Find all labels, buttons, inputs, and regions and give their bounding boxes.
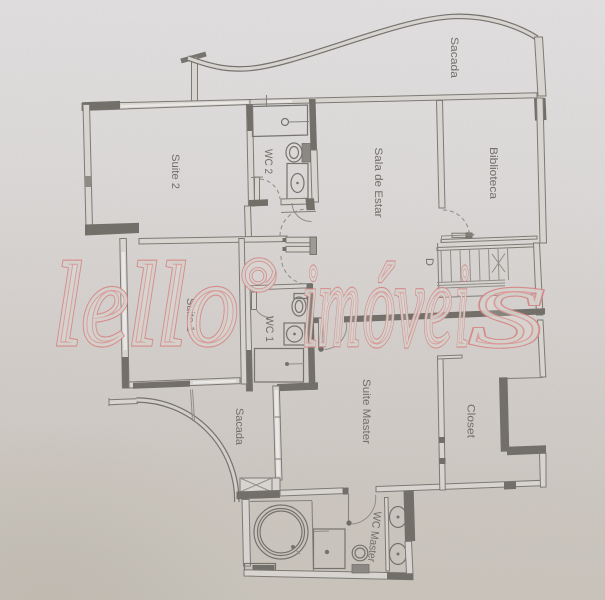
svg-text:WC Master: WC Master bbox=[365, 511, 383, 563]
svg-text:Sacada: Sacada bbox=[448, 37, 460, 79]
svg-text:Biblioteca: Biblioteca bbox=[487, 147, 499, 200]
svg-text:óve: óve bbox=[363, 240, 452, 371]
svg-text:WC 1: WC 1 bbox=[263, 316, 275, 342]
svg-text:lello: lello bbox=[53, 239, 238, 370]
svg-text:im: im bbox=[302, 240, 360, 371]
svg-text:Sala de Estar: Sala de Estar bbox=[372, 148, 384, 218]
svg-text:s: s bbox=[470, 240, 546, 371]
svg-text:Closet: Closet bbox=[465, 404, 477, 438]
svg-text:Suite 2: Suite 2 bbox=[169, 154, 181, 189]
svg-text:Sacada: Sacada bbox=[233, 408, 245, 446]
svg-text:Suite Master: Suite Master bbox=[360, 379, 372, 444]
svg-text:WC 2: WC 2 bbox=[262, 149, 274, 174]
svg-text:i: i bbox=[455, 240, 469, 371]
